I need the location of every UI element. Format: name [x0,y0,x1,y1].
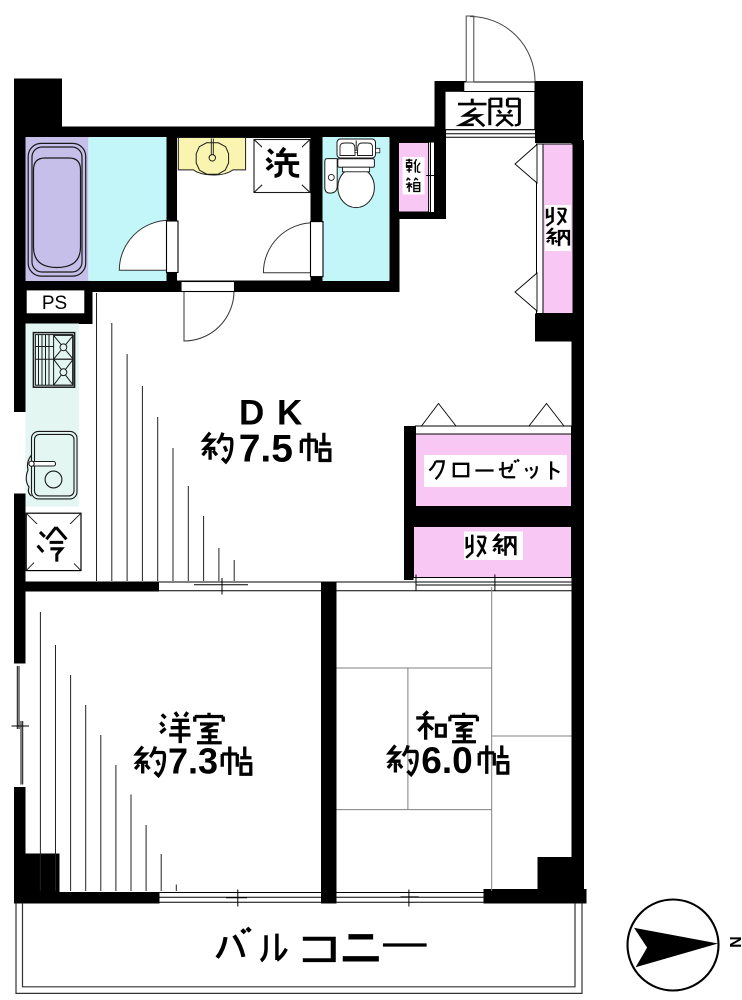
svg-text:N: N [726,936,742,948]
svg-text:7.5: 7.5 [239,428,293,471]
svg-text:PS: PS [42,293,67,314]
svg-text:6.0: 6.0 [421,740,472,781]
svg-text:7.3: 7.3 [168,741,218,782]
